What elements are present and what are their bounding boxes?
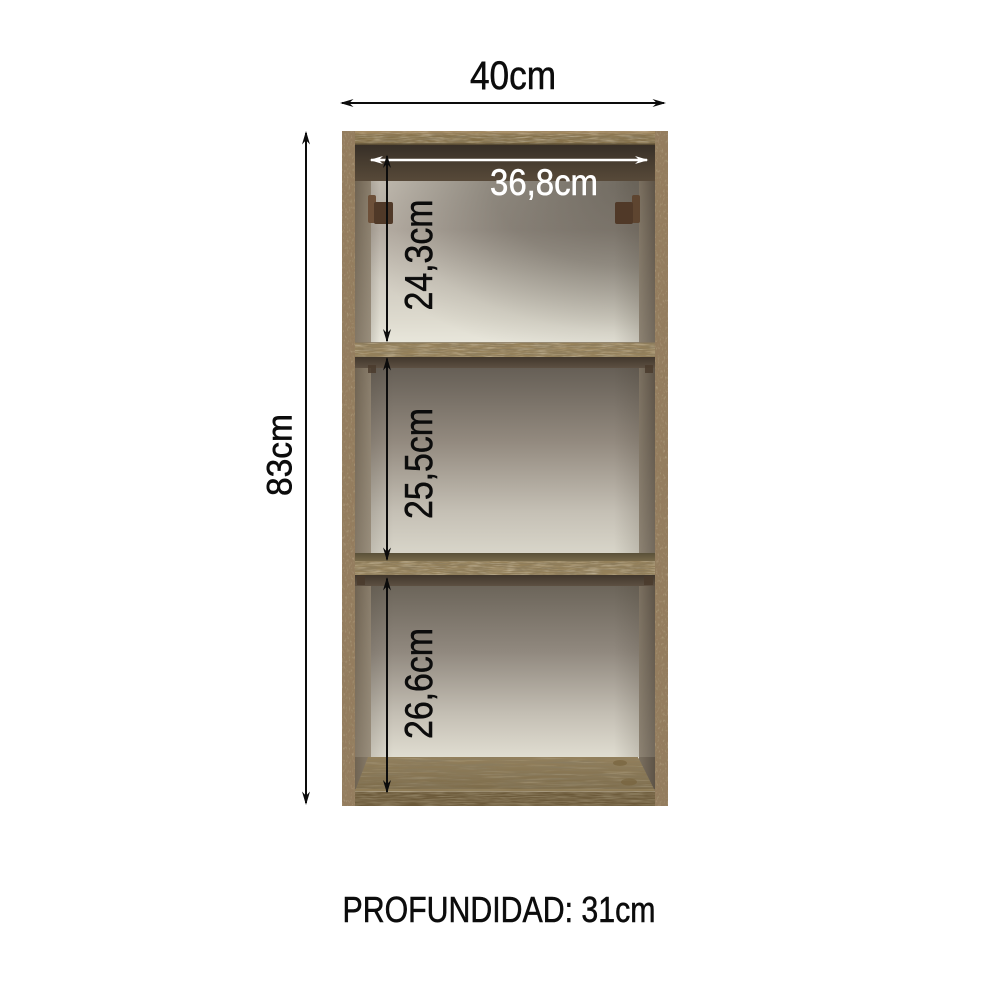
svg-text:26,6cm: 26,6cm	[398, 628, 441, 739]
svg-text:40cm: 40cm	[470, 54, 556, 98]
svg-text:PROFUNDIDAD: 31cm: PROFUNDIDAD: 31cm	[343, 889, 656, 930]
svg-text:25,5cm: 25,5cm	[398, 408, 441, 519]
svg-text:36,8cm: 36,8cm	[490, 162, 598, 203]
svg-text:83cm: 83cm	[261, 414, 300, 496]
svg-text:24,3cm: 24,3cm	[398, 200, 441, 311]
